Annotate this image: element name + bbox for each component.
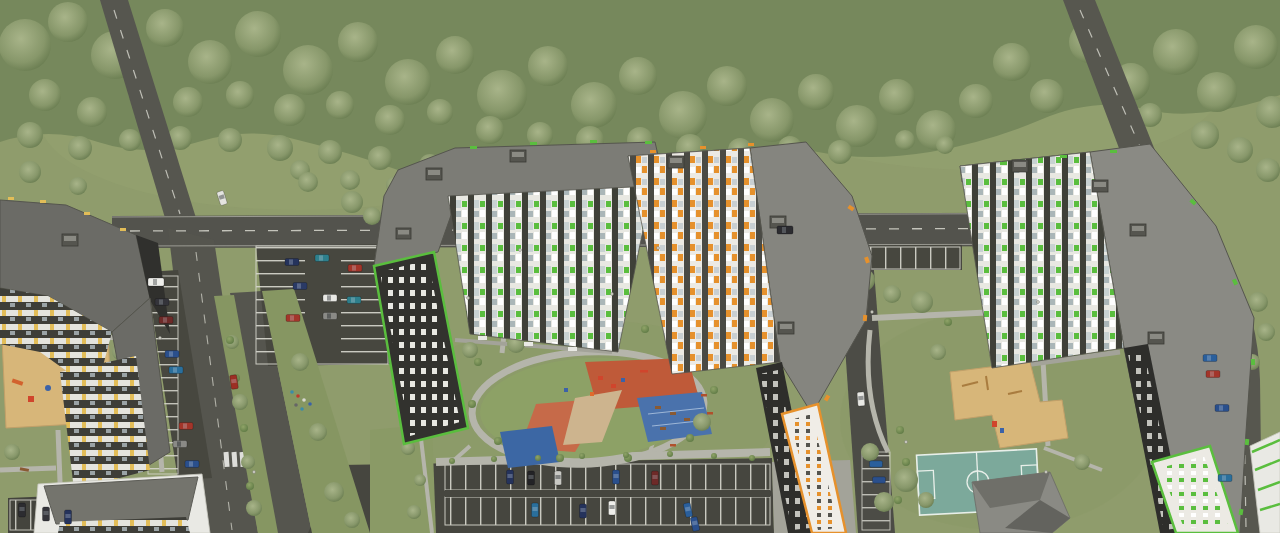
car [857,392,865,406]
play-figure-blue [1000,428,1004,433]
car [148,278,164,286]
wing-facade [60,356,150,490]
building-low-white [34,474,210,533]
car [285,259,299,266]
aerial-render-scene [0,0,1280,533]
car [347,297,361,304]
car [155,299,169,306]
car [555,471,562,485]
car [315,255,329,262]
car [1218,475,1232,482]
car [873,477,886,483]
car [165,351,179,358]
car [1215,405,1229,412]
car [507,470,514,484]
car [580,504,587,518]
car [609,501,616,515]
car [293,283,307,290]
roof-box [62,234,78,246]
car [652,471,659,485]
car [870,461,883,467]
car [179,423,193,430]
car [173,441,187,448]
car [159,317,173,324]
car [169,367,183,374]
pool-blue [500,426,560,468]
car [777,226,793,234]
car [323,313,337,320]
car [1203,355,1217,362]
car [613,470,620,484]
car [43,507,50,521]
car [286,315,300,322]
car [1206,371,1220,378]
car [65,510,72,524]
car [19,503,26,517]
car [185,461,199,468]
play-figure-red [992,421,997,427]
car [528,471,535,485]
car [323,295,337,302]
car [348,265,362,272]
facade [448,186,652,352]
car [532,503,539,517]
